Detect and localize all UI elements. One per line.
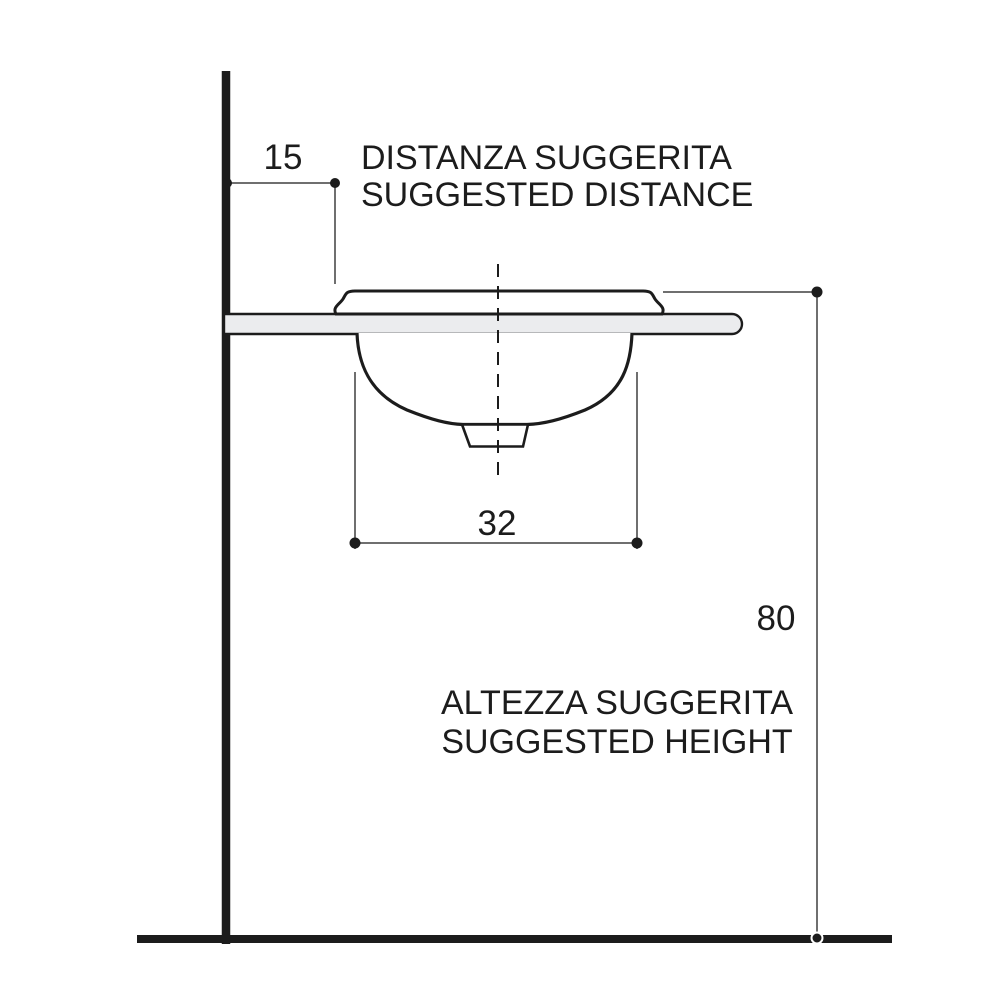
distance-caption-italian: DISTANZA SUGGERITA [361,139,732,177]
drain-fitting [462,425,528,447]
dim-32-value: 32 [478,504,517,543]
dim-15-value: 15 [264,138,303,177]
height-caption-english: SUGGESTED HEIGHT [441,723,792,761]
diagram-canvas: 15 32 80 DISTANZA SUGGERITA SUGGESTED DI… [0,0,1000,1000]
dim-80-value: 80 [757,599,796,638]
dim-80-dot-bottom [812,933,823,944]
dim-15-dot-right [330,178,340,188]
distance-caption: DISTANZA SUGGERITA SUGGESTED DISTANCE [361,139,753,214]
basin-bowl [357,333,632,425]
dim-15-dot-left [222,178,232,188]
dimension-distance-15: 15 [222,138,340,284]
height-caption-italian: ALTEZZA SUGGERITA [441,684,793,722]
height-caption: ALTEZZA SUGGERITA SUGGESTED HEIGHT [441,684,793,761]
dim-80-dot-top [812,287,823,298]
countertop [224,314,742,334]
dim-32-dot-right [632,538,643,549]
dimension-height-80: 80 [663,287,823,944]
distance-caption-english: SUGGESTED DISTANCE [361,176,753,214]
installation-diagram: 15 32 80 DISTANZA SUGGERITA SUGGESTED DI… [0,0,1000,1000]
dim-32-dot-left [350,538,361,549]
